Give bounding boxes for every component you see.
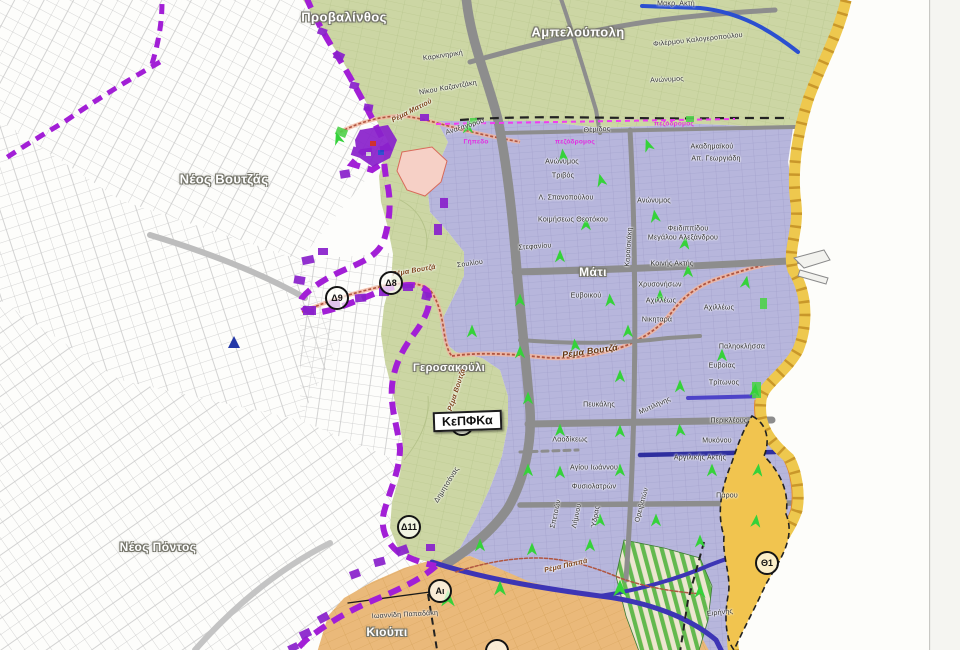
street-label: Φειδιππίδου	[668, 226, 709, 233]
street-label: Αγίου Ιωάννου	[570, 465, 618, 472]
annotation-label: πεζόδρομος	[555, 139, 595, 146]
street-label: Πευκάλης	[583, 402, 615, 409]
street-label: Παληοκλήσσα	[719, 344, 765, 351]
street-label: Αργιλικής Ακτής	[674, 455, 726, 462]
area-label: Νέος Βουτζάς	[180, 172, 269, 187]
kepfka-label: ΚεΠΦΚα	[442, 413, 493, 429]
area-label: Αμπελούπολη	[531, 25, 624, 40]
area-label: Γεροσακούλι	[413, 362, 485, 374]
area-label: Κιούπι	[366, 625, 407, 639]
street-label: Τρίτωνος	[709, 380, 739, 387]
street-label: Ανώνυμος	[545, 159, 579, 166]
annotation-label: Γήπεδο	[463, 139, 488, 146]
street-label: Φυσιολατρών	[572, 484, 616, 491]
street-label: Νικηταρά	[642, 317, 672, 324]
area-label: Μάτι	[579, 265, 607, 279]
street-label: Τριβός	[552, 173, 574, 180]
street-label: Μυκόνου	[702, 438, 732, 445]
zone-marker-Θ1: Θ1	[755, 551, 779, 575]
street-label: Ανώνυμος	[637, 198, 671, 205]
zoning-map: ΠροβαλίνθοςΑμπελούποληΝέος ΒουτζάςΝέος Π…	[0, 0, 960, 650]
zone-marker-Αι: Αι	[428, 579, 452, 603]
street-label: Πάρου	[716, 493, 738, 500]
annotation-label: πεζόδρομος	[654, 121, 694, 128]
street-label: Αχιλλέως	[646, 298, 676, 305]
map-margin	[931, 0, 960, 650]
zone-marker-Δ8: Δ8	[379, 271, 403, 295]
map-frame-edge	[929, 0, 930, 650]
street-label: Κοινής Ακτής	[651, 261, 694, 268]
street-label: Αχιλλέως	[704, 305, 734, 312]
street-label: Λ. Σπανοπούλου	[539, 195, 594, 202]
area-label: Νέος Πόντος	[120, 540, 197, 554]
zone-marker-Δ9: Δ9	[325, 286, 349, 310]
street-label: Ευβοίας	[709, 363, 736, 370]
street-label: Περικλέους	[711, 418, 748, 425]
kepfka-label-box: ΚεΠΦΚα	[433, 410, 502, 432]
zone-marker-Δ11: Δ11	[397, 515, 421, 539]
street-label: Ακαδημαϊκού	[691, 144, 734, 151]
street-label: Απ. Γεωργιάδη	[691, 156, 740, 163]
street-label: Χρυσονήσων	[638, 282, 681, 289]
street-label: Μεγάλου Αλεξάνδρου	[648, 235, 718, 242]
area-label: Προβαλίνθος	[301, 10, 387, 25]
street-label: Μακρ. Ακτή	[657, 1, 695, 8]
street-label: Ευβοικού	[571, 293, 602, 300]
street-label: Κοιμήσεως Θεοτόκου	[538, 217, 608, 224]
street-label: Λαοδίκεως	[552, 437, 587, 444]
